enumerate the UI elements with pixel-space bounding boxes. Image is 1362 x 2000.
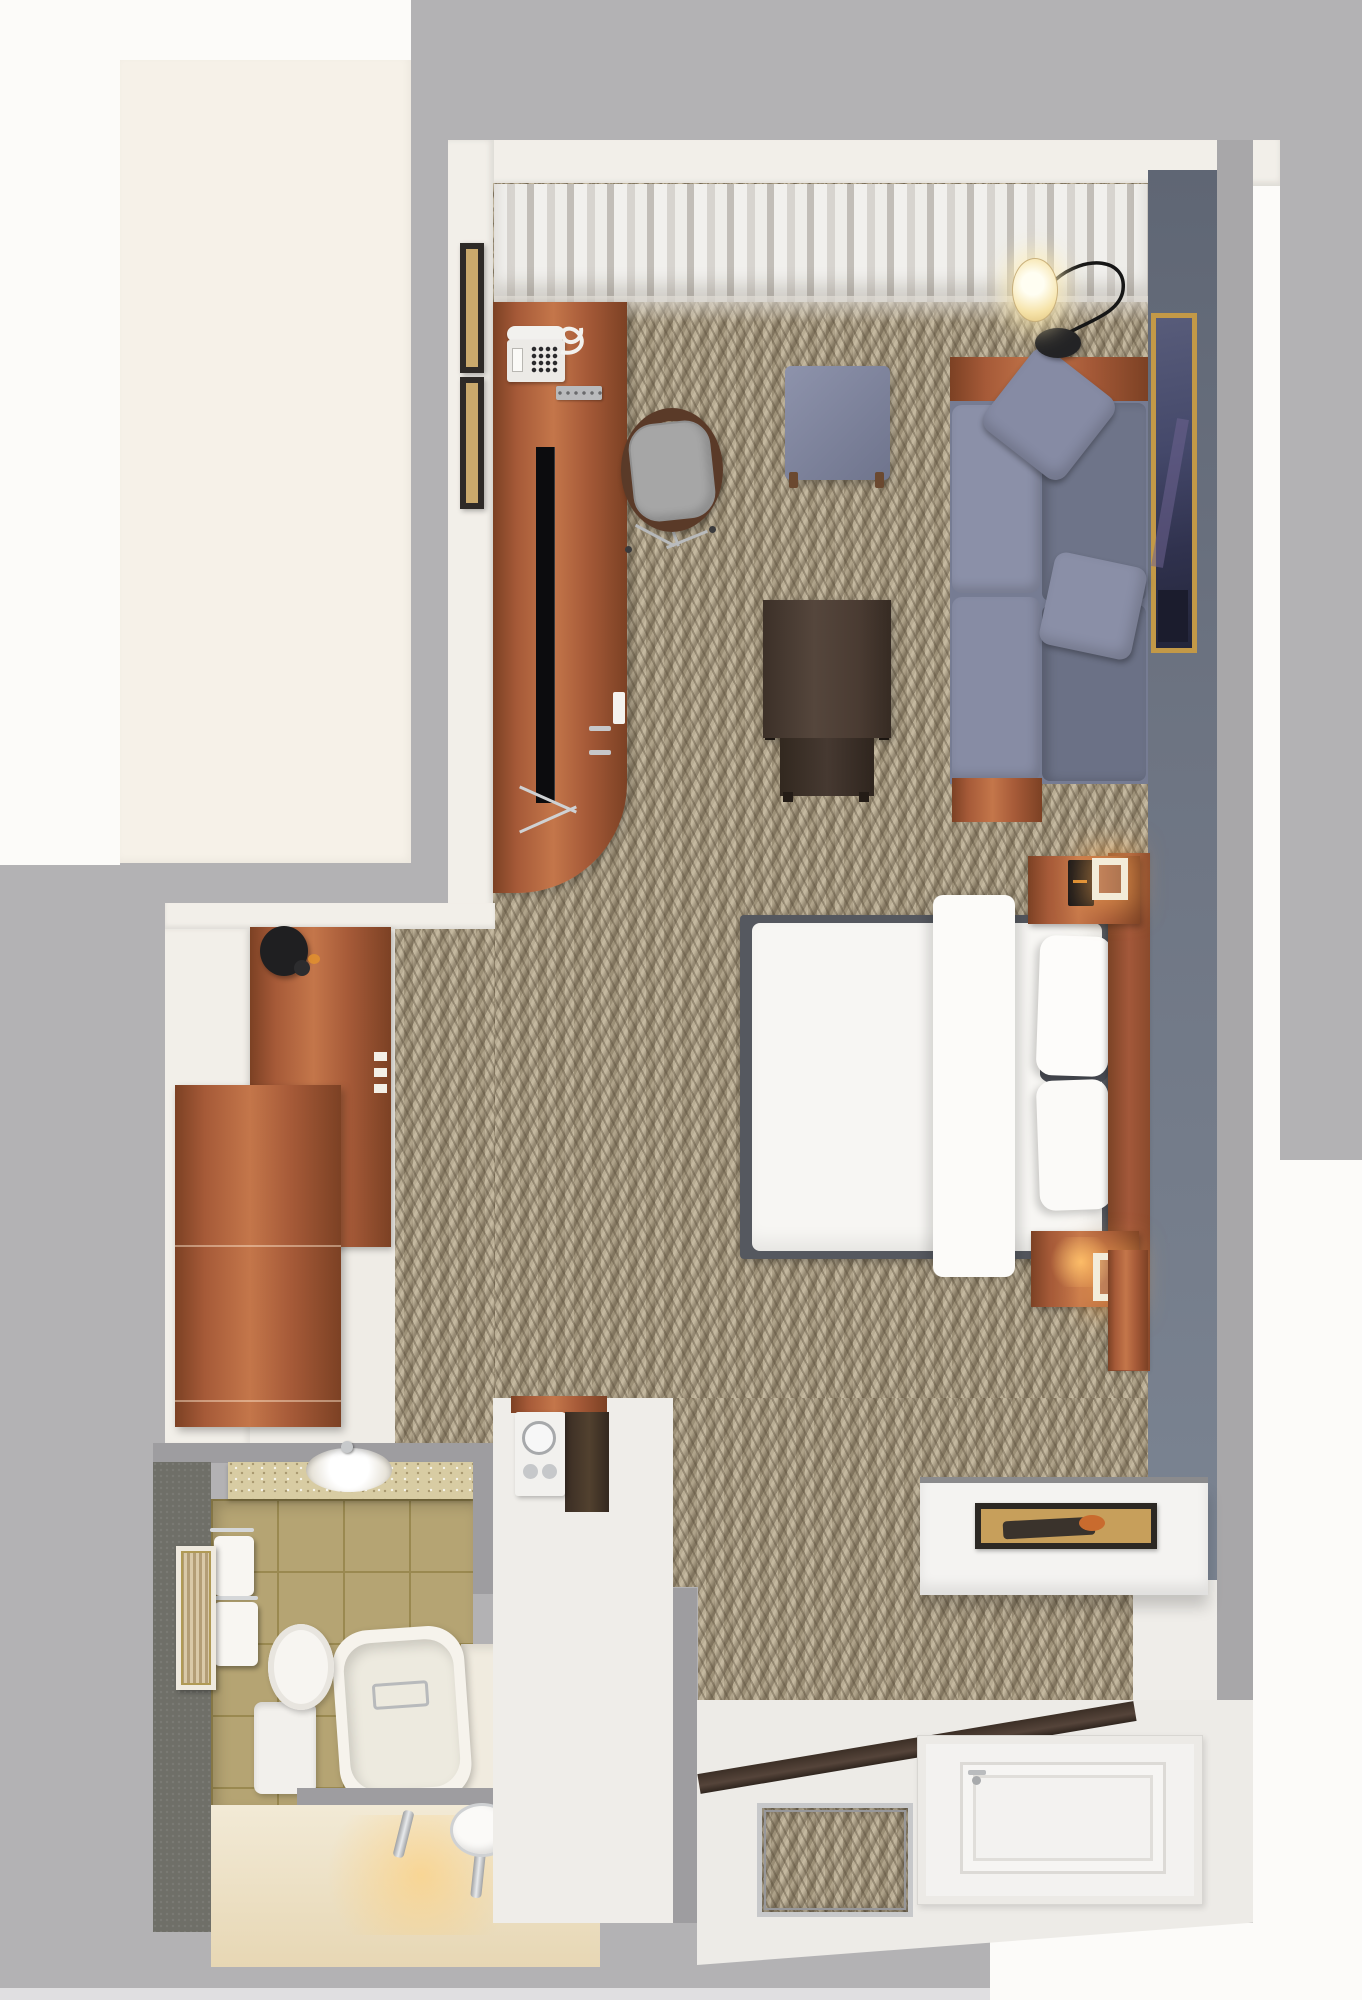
cube-lamp — [1092, 858, 1128, 900]
bed-pillow — [1036, 1079, 1112, 1211]
art-streak — [1151, 418, 1189, 568]
outer-white-right-strip — [1253, 140, 1280, 1160]
hook-light — [308, 954, 320, 964]
sofa-pillow — [1037, 550, 1148, 661]
telephone — [507, 326, 579, 384]
wall-hook-disc — [254, 920, 316, 984]
dresser — [175, 1085, 341, 1427]
chair-caster — [625, 546, 632, 553]
coffee-station-counter — [511, 1396, 607, 1413]
towel — [214, 1602, 258, 1666]
exterior-cream-panel — [120, 60, 411, 863]
bathroom-art — [176, 1546, 216, 1690]
arc-floor-lamp — [1005, 252, 1157, 364]
sofa-seat-cushion — [952, 597, 1040, 781]
table-top — [763, 600, 891, 738]
phone-cord — [557, 318, 587, 358]
toilet-bowl — [268, 1624, 334, 1710]
shelf-edge — [374, 1084, 387, 1093]
recessed-entry-mat — [757, 1803, 913, 1917]
hook-knob — [294, 960, 310, 976]
wall-frame-2 — [460, 377, 484, 509]
headboard-side-panel — [1108, 1250, 1148, 1370]
bed-duvet-fold — [933, 895, 1015, 1277]
towel-bar — [210, 1528, 254, 1532]
bed-pillow — [1036, 935, 1113, 1077]
drawer-handle — [589, 750, 611, 755]
clock-radio — [1068, 860, 1094, 906]
art-orange-accent — [1079, 1515, 1105, 1531]
door-handle — [968, 1770, 986, 1775]
phone-display — [512, 348, 523, 372]
desk-chair — [613, 406, 733, 558]
door-knob — [972, 1776, 981, 1785]
outer-white-right — [1253, 1160, 1362, 2000]
cup — [542, 1464, 557, 1479]
toilet-tank — [254, 1702, 316, 1794]
sofa-wood-trim-bottom — [952, 778, 1042, 822]
bathroom-west-wall — [153, 1462, 211, 1932]
bathroom-sink — [306, 1448, 392, 1492]
coffee-station-cabinet — [565, 1412, 609, 1512]
coffee-station — [515, 1412, 565, 1496]
wall-frame-1 — [460, 243, 484, 373]
lamp-base — [1035, 328, 1081, 358]
carpet-closet — [395, 905, 495, 1445]
coffee-table — [763, 600, 891, 740]
drawer-handle — [589, 726, 611, 731]
lamp-shade — [1012, 258, 1058, 322]
entry-partition-wall — [673, 1588, 697, 1923]
door-panel — [960, 1762, 1166, 1874]
table-leg — [783, 792, 793, 802]
closet-north-wall — [165, 903, 495, 929]
chair-caster — [709, 526, 716, 533]
chair-cushion — [626, 418, 718, 524]
bathtub-faucet — [372, 1680, 430, 1710]
towel-bar — [210, 1596, 258, 1600]
ottoman-leg — [789, 472, 798, 488]
drawer-seam — [175, 1245, 341, 1247]
right-wall-core — [1217, 140, 1253, 1923]
art-dark-block — [1158, 590, 1188, 642]
shelf-edge — [374, 1052, 387, 1061]
ottoman — [785, 366, 890, 480]
sofa — [950, 357, 1148, 827]
remote-control — [556, 386, 602, 400]
shelf-edge — [374, 1068, 387, 1077]
drawer-seam — [175, 1400, 341, 1402]
entry-door — [917, 1735, 1203, 1905]
towel — [214, 1536, 254, 1596]
console-shelf — [920, 1483, 1208, 1595]
wall-art-gold-frame — [1151, 313, 1197, 653]
bathtub-basin — [342, 1637, 462, 1792]
kettle-top — [522, 1421, 556, 1455]
cup — [523, 1464, 538, 1479]
phone-keypad — [531, 346, 559, 374]
console-framed-art — [975, 1503, 1157, 1549]
clock-digits — [1073, 880, 1087, 883]
ottoman-leg — [875, 472, 884, 488]
flat-tv — [536, 447, 554, 803]
nightstand-upper — [1028, 856, 1140, 924]
outer-white-left — [0, 0, 120, 865]
floorplan-scene — [0, 0, 1362, 2000]
desk-tray — [613, 692, 625, 724]
tv-stand-leg — [519, 806, 577, 834]
table-shelf — [780, 738, 874, 796]
sink-faucet — [341, 1441, 353, 1453]
bathtub — [330, 1624, 474, 1807]
table-leg — [859, 792, 869, 802]
